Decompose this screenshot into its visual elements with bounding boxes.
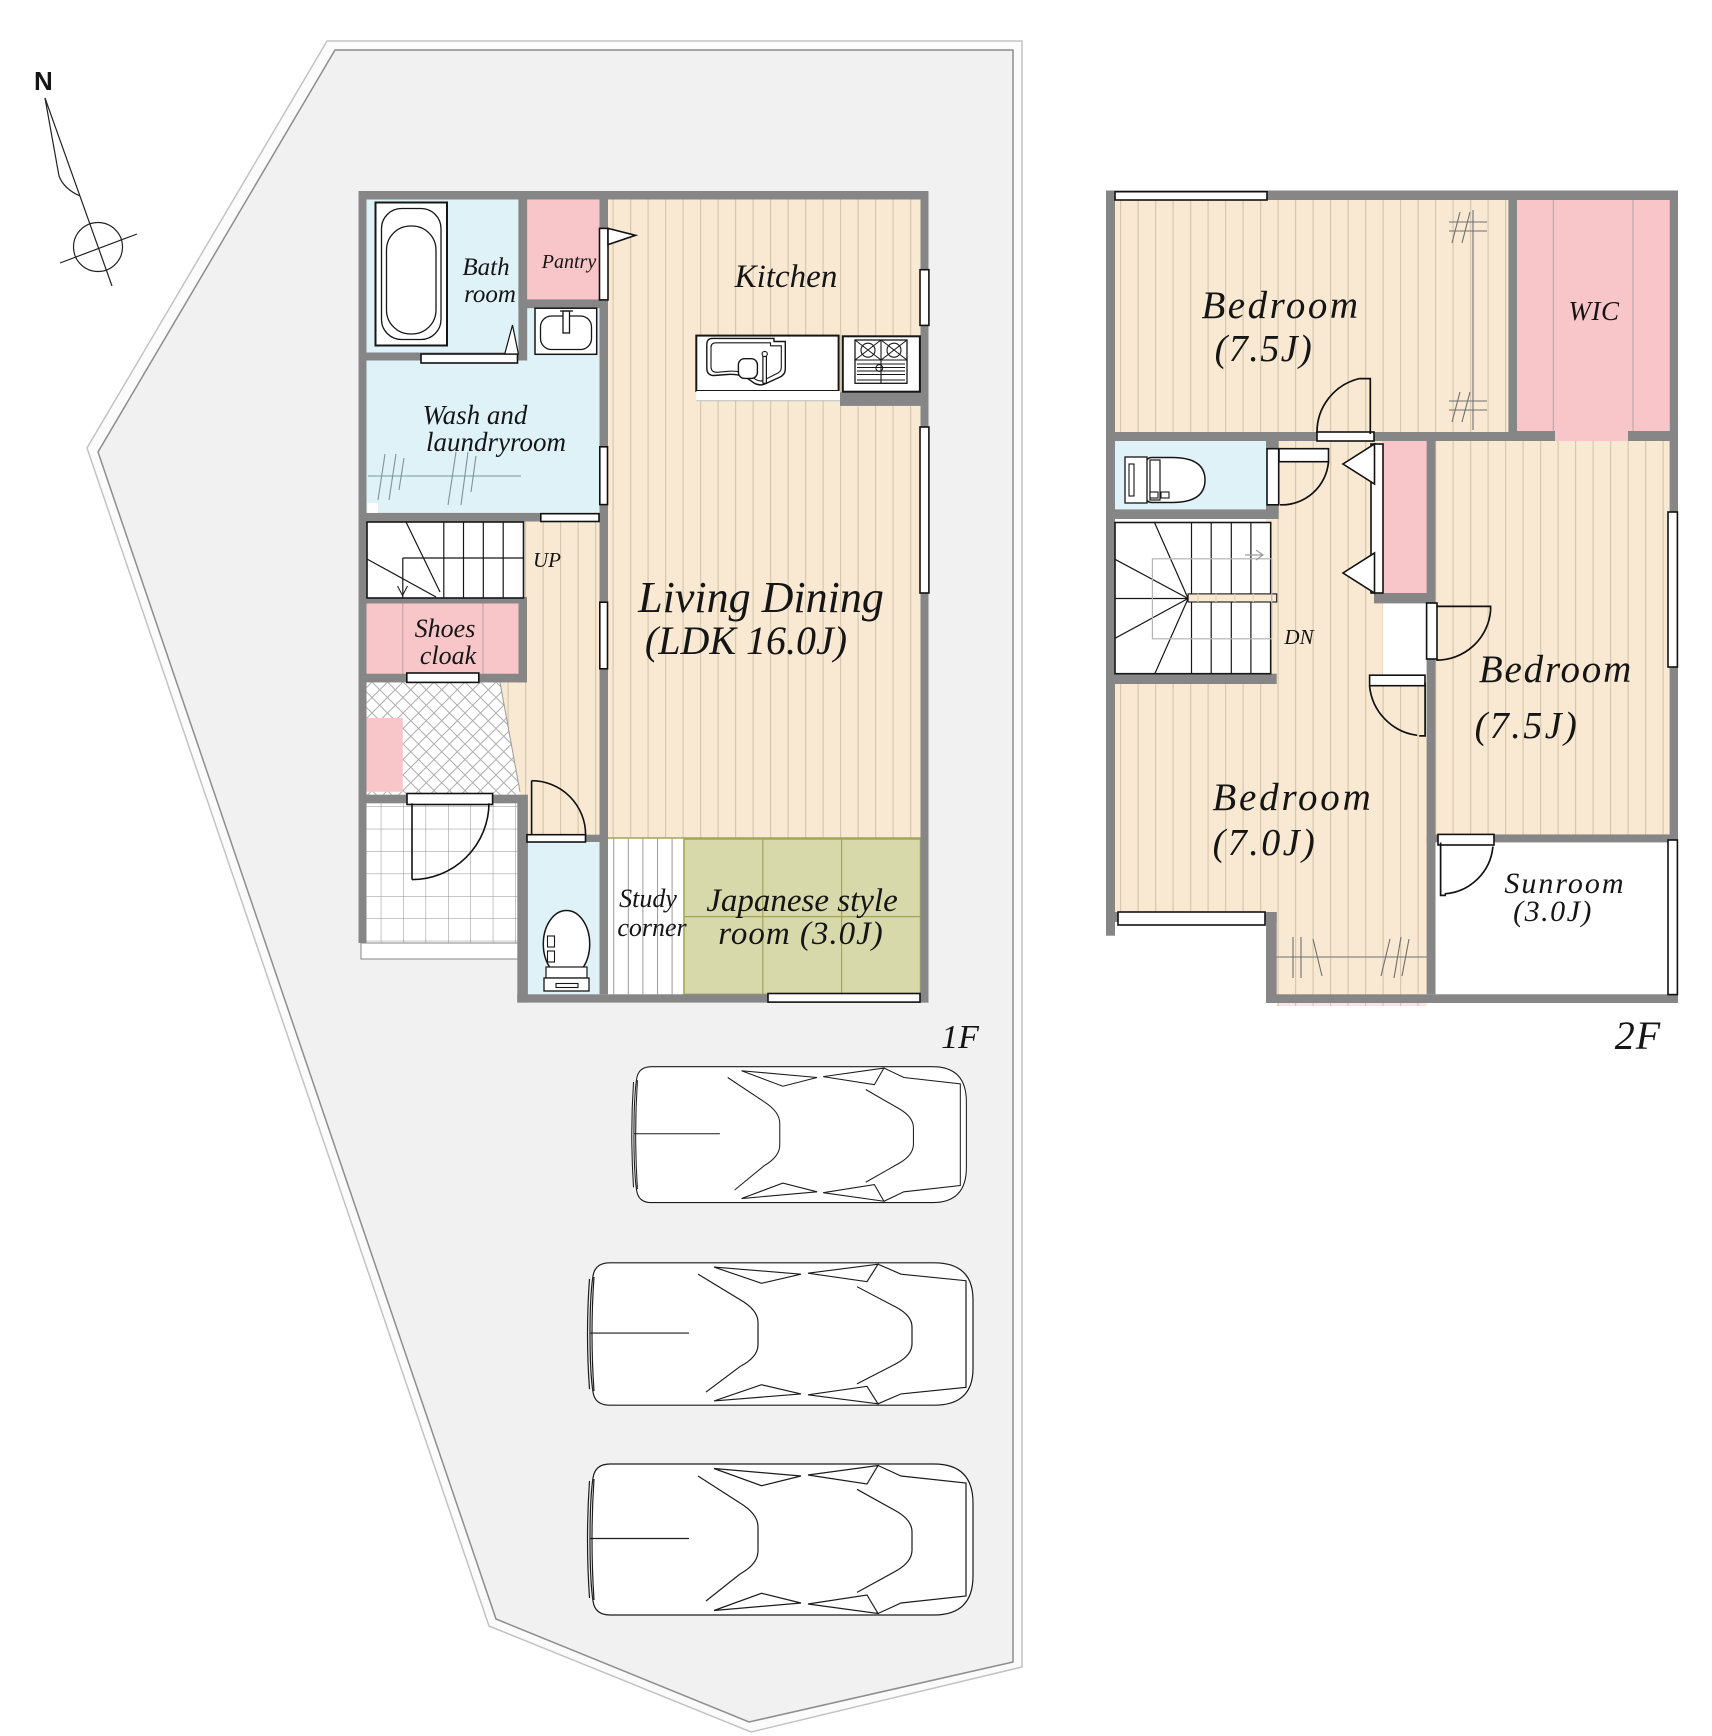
svg-text:Bedroom: Bedroom xyxy=(1201,284,1360,327)
svg-text:Study: Study xyxy=(619,884,677,913)
svg-text:Kitchen: Kitchen xyxy=(734,259,838,295)
svg-text:(3.0J): (3.0J) xyxy=(1513,895,1593,928)
svg-text:corner: corner xyxy=(617,913,687,942)
svg-text:N: N xyxy=(34,66,53,96)
svg-text:Living Dining: Living Dining xyxy=(637,573,884,622)
svg-text:UP: UP xyxy=(533,548,561,572)
svg-text:laundryroom: laundryroom xyxy=(426,427,566,457)
svg-text:room (3.0J): room (3.0J) xyxy=(718,916,884,952)
svg-text:DN: DN xyxy=(1283,625,1314,649)
svg-text:1F: 1F xyxy=(941,1019,980,1056)
svg-text:(7.5J): (7.5J) xyxy=(1215,328,1314,370)
svg-text:Wash and: Wash and xyxy=(423,400,528,430)
svg-text:WIC: WIC xyxy=(1569,296,1620,326)
svg-text:(7.5J): (7.5J) xyxy=(1475,705,1580,747)
svg-text:Bath: Bath xyxy=(462,254,509,281)
svg-text:Japanese style: Japanese style xyxy=(706,883,898,919)
svg-text:cloak: cloak xyxy=(420,641,477,670)
svg-text:Bedroom: Bedroom xyxy=(1212,776,1373,819)
svg-text:(7.0J): (7.0J) xyxy=(1213,822,1318,864)
svg-text:Bedroom: Bedroom xyxy=(1479,648,1633,691)
svg-text:2F: 2F xyxy=(1615,1013,1661,1058)
svg-text:(LDK 16.0J): (LDK 16.0J) xyxy=(645,618,847,663)
svg-text:room: room xyxy=(464,281,516,308)
svg-text:Shoes: Shoes xyxy=(415,614,476,643)
svg-text:Pantry: Pantry xyxy=(541,251,597,273)
